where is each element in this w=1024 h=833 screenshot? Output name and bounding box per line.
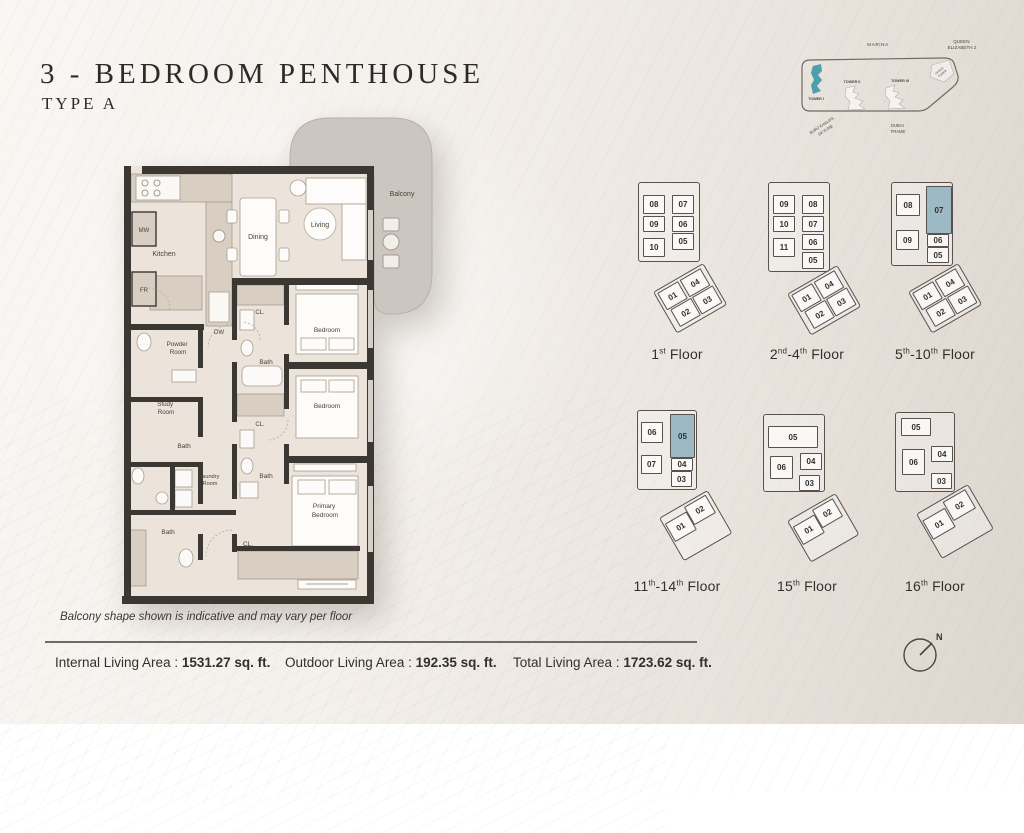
key-plan-label: 1st Floor (612, 346, 742, 362)
key-plan-unit: 08 (802, 195, 824, 214)
total-area: Total Living Area : 1723.62 sq. ft. (513, 655, 712, 670)
key-plan: 080709061005010402031st Floor (612, 170, 742, 380)
tower-2-shape (845, 86, 865, 110)
sink (213, 230, 225, 242)
dubai-frame-line2: FRAME (891, 129, 906, 134)
key-plan-unit: 03 (671, 471, 692, 487)
floor-plan: MW FR Kitchen DW Dining Living Balcony C… (114, 114, 436, 614)
room-label-dining: Dining (248, 234, 268, 241)
key-plan-unit: 09 (643, 216, 665, 232)
key-plan-lower-block: 01040203 (653, 263, 727, 334)
room-label-bath-1: Bath (259, 359, 273, 366)
page-subtitle: TYPE A (42, 94, 118, 114)
room-label-bath-2: Bath (259, 473, 273, 480)
primary-line1: Primary (313, 503, 336, 510)
key-plan-unit: 09 (773, 195, 795, 214)
dubai-frame-line1: DUBAI (891, 123, 904, 128)
room-label-bedroom-2: Bedroom (314, 403, 340, 410)
tower-1-label: TOWER I (808, 97, 824, 101)
key-plan-label: 5th-10th Floor (870, 346, 1000, 362)
tower-2-label: TOWER II (844, 80, 861, 84)
burj-khalifa-label: BURJ KHALIFA SKYLINE (809, 115, 839, 140)
key-plan-label: 16th Floor (870, 578, 1000, 594)
key-plan: 0807090605010402035th-10th Floor (870, 170, 1000, 380)
total-area-value: 1723.62 sq. ft. (623, 655, 712, 670)
powder-line1: Powder (167, 341, 188, 348)
room-label-closet-mid: CL. (255, 422, 265, 428)
key-plan-unit: 05 (901, 418, 931, 436)
key-plan-label: 2nd-4th Floor (742, 346, 872, 362)
key-plan-label: 15th Floor (742, 578, 872, 594)
room-label-closet-top: CL. (255, 310, 265, 316)
dubai-frame-label: DUBAI FRAME (891, 123, 906, 134)
console (294, 464, 356, 471)
room-label-fr: FR (140, 288, 149, 294)
outdoor-area-label: Outdoor Living Area : (285, 655, 416, 670)
key-plan-unit: 07 (802, 216, 824, 232)
key-plan-unit: 07 (641, 455, 662, 474)
key-plan-unit: 05 (802, 252, 824, 269)
outdoor-area-value: 192.35 sq. ft. (416, 655, 497, 670)
key-plan-unit: 06 (641, 422, 663, 443)
room-label-balcony: Balcony (390, 191, 415, 198)
balcony-chair (383, 218, 399, 231)
key-plan-unit: 06 (902, 449, 925, 475)
study-line2: Room (158, 409, 175, 416)
key-plan-lower-block: 01040203 (787, 265, 861, 336)
footer-divider (45, 641, 697, 643)
key-plan-label: 11th-14th Floor (612, 578, 742, 594)
powder-line2: Room (170, 349, 187, 356)
tower-3-shape (885, 85, 905, 109)
room-label-study: Study Room (157, 401, 175, 416)
key-plan-unit: 09 (896, 230, 919, 250)
room-label-closet-bottom: CL. (243, 541, 253, 548)
balcony-table (383, 234, 399, 250)
key-plan: 05060403020116th Floor (870, 402, 1000, 612)
room-label-kitchen: Kitchen (152, 251, 175, 258)
key-plan-unit: 05 (670, 414, 695, 458)
key-plan-lower-block: 0201 (916, 484, 994, 559)
room-label-powder: Powder Room (167, 341, 190, 356)
dresser (298, 580, 356, 589)
key-plan-unit: 06 (802, 234, 824, 250)
key-plan-unit: 06 (927, 234, 949, 247)
bathtub (242, 366, 282, 386)
outdoor-area: Outdoor Living Area : 192.35 sq. ft. (285, 655, 497, 670)
laundry-line2: Room (203, 481, 218, 487)
room-label-dw: DW (214, 330, 224, 336)
key-plan: 05060403020115th Floor (742, 402, 872, 612)
compass-icon: N (900, 630, 950, 676)
lamp (290, 180, 306, 196)
key-plan-unit: 07 (672, 195, 694, 214)
page-title: 3 - BEDROOM PENTHOUSE (40, 58, 484, 91)
key-plan-unit: 06 (770, 456, 793, 479)
key-plan-unit: 03 (799, 475, 820, 491)
study-line1: Study (157, 401, 174, 408)
key-plan-unit: 08 (896, 194, 920, 216)
site-map: MARINA QUEEN ELIZABETH 2 TOWER I TOWER I… (782, 30, 992, 148)
key-plan-unit: 06 (672, 216, 694, 232)
key-plan-unit: 05 (672, 233, 694, 250)
laundry-line1: Laundry (199, 474, 219, 480)
total-area-label: Total Living Area : (513, 655, 623, 670)
key-plan-unit: 04 (800, 453, 822, 470)
key-plan-unit: 10 (773, 216, 795, 232)
brochure-page: 3 - BEDROOM PENTHOUSE TYPE A MARINA QUEE… (0, 0, 1024, 724)
closet-strip-top (237, 285, 284, 305)
key-plan: 09081007110605010402032nd-4th Floor (742, 170, 872, 380)
balcony-note: Balcony shape shown is indicative and ma… (60, 611, 352, 623)
key-plan-unit: 04 (671, 458, 693, 471)
room-label-bedroom-1: Bedroom (314, 327, 340, 334)
room-label-mw: MW (139, 228, 150, 234)
tower-3-label: TOWER III (891, 79, 909, 83)
room-label-bath-3: Bath (161, 529, 175, 536)
key-plan-unit: 03 (931, 473, 952, 489)
compass-north-label: N (936, 632, 943, 642)
closet-strip-bottom (238, 551, 358, 579)
room-label-bath-study: Bath (177, 443, 191, 450)
queen-elizabeth-line2: ELIZABETH 2 (948, 45, 977, 50)
internal-area: Internal Living Area : 1531.27 sq. ft. (55, 655, 270, 670)
dishwasher (209, 292, 229, 322)
key-plan-unit: 11 (773, 238, 795, 257)
stove (136, 176, 180, 200)
room-label-living: Living (311, 222, 329, 229)
queen-elizabeth-label: QUEEN ELIZABETH 2 (948, 39, 977, 50)
internal-area-value: 1531.27 sq. ft. (182, 655, 271, 670)
key-plan-lower-block: 0201 (787, 493, 859, 563)
key-plan: 0605070403020111th-14th Floor (612, 402, 742, 612)
key-plan-unit: 05 (768, 426, 818, 448)
key-plan-unit: 07 (926, 186, 952, 234)
balcony-chair (383, 255, 399, 268)
key-plan-unit: 08 (643, 195, 665, 214)
primary-line2: Bedroom (312, 512, 338, 519)
internal-area-label: Internal Living Area : (55, 655, 182, 670)
closet-strip-mid (237, 394, 284, 416)
key-plan-lower-block: 0201 (659, 490, 732, 561)
wardrobe (150, 276, 202, 310)
queen-elizabeth-line1: QUEEN (953, 39, 969, 44)
key-plan-unit: 05 (927, 247, 949, 263)
tower-1-shape (811, 64, 822, 94)
marina-label: MARINA (867, 42, 889, 47)
key-plan-unit: 04 (931, 446, 953, 462)
key-plan-unit: 10 (643, 238, 665, 257)
key-plan-lower-block: 01040203 (908, 263, 982, 334)
